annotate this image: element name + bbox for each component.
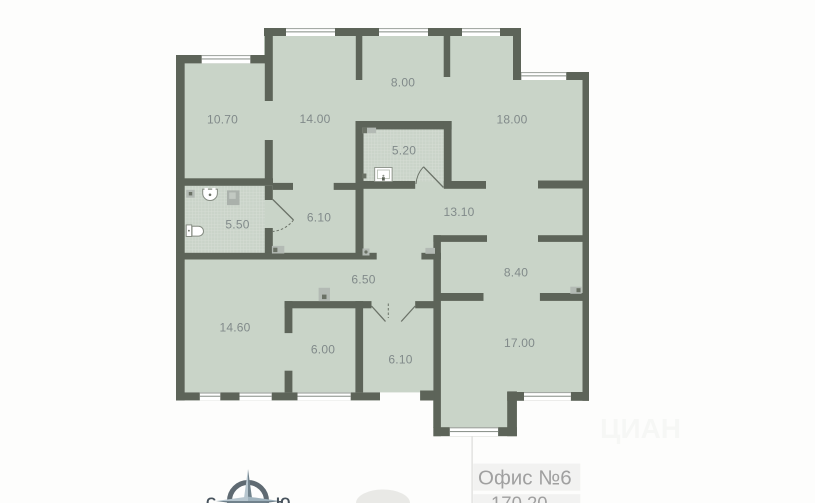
- svg-text:6.00: 6.00: [311, 343, 335, 357]
- svg-text:170.20: 170.20: [491, 493, 548, 503]
- svg-text:6.10: 6.10: [388, 353, 412, 367]
- svg-text:5.50: 5.50: [225, 217, 249, 231]
- svg-text:8.40: 8.40: [504, 266, 528, 280]
- svg-text:С: С: [206, 494, 216, 503]
- svg-text:18.00: 18.00: [496, 113, 527, 127]
- svg-text:13.10: 13.10: [443, 205, 474, 219]
- svg-text:5.20: 5.20: [392, 144, 416, 158]
- svg-text:Ю: Ю: [276, 494, 290, 503]
- svg-text:6.50: 6.50: [351, 273, 375, 287]
- svg-text:6.10: 6.10: [307, 211, 331, 225]
- svg-text:10.70: 10.70: [207, 113, 238, 127]
- svg-text:8.00: 8.00: [391, 76, 415, 90]
- svg-text:14.00: 14.00: [299, 112, 330, 126]
- svg-text:Офис №6: Офис №6: [478, 467, 572, 490]
- svg-text:14.60: 14.60: [219, 321, 250, 335]
- svg-text:ЦИАН: ЦИАН: [600, 413, 681, 444]
- svg-text:17.00: 17.00: [504, 336, 535, 350]
